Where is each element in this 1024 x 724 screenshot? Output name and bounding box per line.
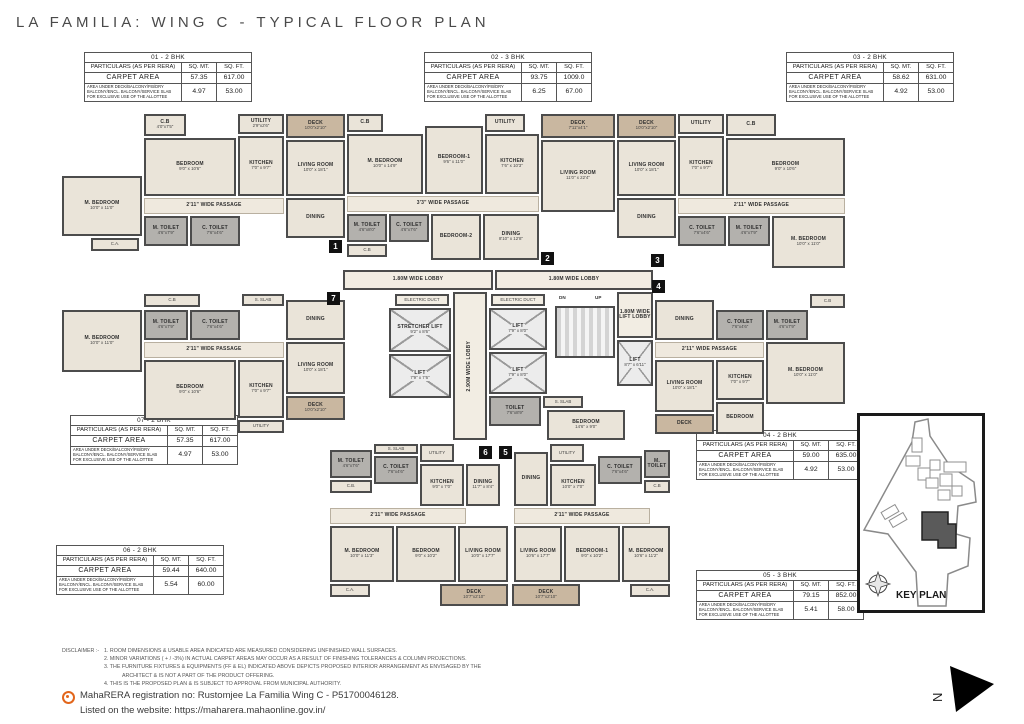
room-name: UTILITY [559,451,575,456]
room-dims: 10'0" x 18'1" [303,168,327,173]
room-name: 2'11" WIDE PASSAGE [554,513,609,519]
room-name: ELECTRIC DUCT [404,298,439,303]
room-name: DINING [675,317,694,323]
area-sqmt: 4.97 [182,83,217,101]
room-u5-utility: UTILITY [550,444,584,462]
unit-marker-2: 2 [541,252,554,265]
room-u1-bedroom: BEDROOM9'0" x 10'6" [144,138,236,196]
room-name: 2'11" WIDE PASSAGE [186,347,241,353]
room-name: C.B. [347,484,356,489]
room-name: S. SLAB [255,298,272,303]
room-u5-bedroom: BEDROOM14'6" x 9'0" [547,410,625,440]
area-under-label: AREA UNDER DECK/BALCONY/P.B/DRY BALCONY/… [787,83,884,101]
room-u4-bedroom: BEDROOM [716,402,764,434]
room-u1-dining: DINING [286,198,345,238]
room-name: S. SLAB [388,447,405,452]
passage-u7: 2'11" WIDE PASSAGE [144,342,284,358]
unit-marker-5: 5 [499,446,512,459]
lobby-strip-left: 1.80M WIDE LOBBY [343,270,493,290]
room-u7-common-toilet: C. TOILET7'6"x4'6" [190,310,240,340]
disclaimer-line: ARCHITECT & IS NOT A PART OF THE PRODUCT… [122,672,512,680]
room-dims: 4'6"x8'0" [359,228,376,233]
room-dims: 10'0" x 17'7" [471,554,495,559]
unit-marker-1: 1 [329,240,342,253]
col-header-sqmt: SQ. MT. [182,63,217,73]
room-u1-common-toilet: C. TOILET7'6"x4'6" [190,216,240,246]
maharera-icon [62,691,75,704]
col-header-sqft: SQ. FT. [919,63,954,73]
room-name: S. SLAB [555,400,572,405]
carpet-sqft: 1009.0 [557,72,592,83]
room-dims: 10'0"x2'10" [305,408,327,413]
room-u6-utility: UTILITY [420,444,454,462]
room-name: UTILITY [253,424,269,429]
room-u4-deck: DECK [655,414,714,434]
room-name: C.A. [111,242,120,247]
lift-4: LIFT8'7" x 6'11" [617,340,653,386]
room-name: C.B [360,120,369,126]
room-name: 3'3" WIDE PASSAGE [417,201,469,207]
room-dims: 7'0" x 9'7" [730,380,749,385]
room-dims: 4'6"x7'9" [158,325,175,330]
room-name: M. TOILET [646,459,668,470]
room-name: DINING [306,215,325,221]
room-u7-living: LIVING ROOM10'0" x 18'1" [286,342,345,394]
room-dims: 10'0"x2'10" [305,126,327,131]
room-name: DINING [637,215,656,221]
carpet-sqft: 617.00 [217,72,252,83]
room-u5-ca: C.A. [630,584,670,597]
room-name: 2'11" WIDE PASSAGE [734,203,789,209]
electric-duct-left: ELECTRIC DUCT [395,294,449,306]
room-u2-bedroom-1: BEDROOM-19'6" x 11'0" [425,126,483,194]
room-u3-kitchen: KITCHEN7'0" x 9'7" [678,136,724,196]
room-u3-master-toilet: M. TOILET4'6"x7'9" [728,216,770,246]
unit-marker-4: 4 [652,280,665,293]
room-u5-common-toilet: C. TOILET7'6"x4'6" [598,456,642,484]
room-u1-utility: UTILITY2'9"x2'6" [238,114,284,134]
room-u1-cb: C.B4'0"x7'5" [144,114,186,136]
room-u2-cb: C.B [347,114,383,132]
room-dims: 10'7"x2'10" [463,595,485,600]
room-dims: 9'6" x 11'0" [443,160,464,165]
room-u6-ca: C.A. [330,584,370,597]
room-dims: 10'0" x 14'9" [373,164,397,169]
lift-3: LIFT7'9" x 8'0" [489,352,547,394]
room-dims: 8'10" x 12'8" [499,237,523,242]
room-name: BEDROOM-2 [440,234,472,240]
room-u5-toilet: TOILET7'6"x8'9" [489,396,541,426]
room-u2-common-toilet: C. TOILET4'6"x7'6" [389,214,429,242]
room-u7-deck: DECK10'0"x2'10" [286,396,345,420]
room-dims: 4'0"x7'5" [157,125,174,130]
room-u5-dining: DINING [514,452,548,506]
room-u2-deck: DECK7'11"x4'1" [541,114,615,138]
room-u7-master-toilet: M. TOILET4'6"x7'9" [144,310,188,340]
carpet-area-label: CARPET AREA [425,72,522,83]
lobby-strip-right: 1.80M WIDE LOBBY [495,270,653,290]
area-sqmt: 4.92 [884,83,919,101]
room-u4-cb: C.B [810,294,845,308]
room-name: C.A. [346,588,355,593]
page-title: LA FAMILIA: WING C - TYPICAL FLOOR PLAN [16,14,490,31]
room-dims: 7'6"x4'6" [388,470,405,475]
room-name: C.B [824,299,831,304]
room-u1-kitchen: KITCHEN7'0" x 9'7" [238,136,284,196]
room-u1-master-toilet: M. TOILET4'6"x7'9" [144,216,188,246]
unit-table-title: 02 - 3 BHK [425,53,592,63]
room-name: 1.80M WIDE LOBBY [393,277,443,283]
room-dims: 10'0" x 11'0" [797,242,821,247]
room-dims: 10'0" x 18'1" [303,368,327,373]
room-dims: 7'9" x 8'0" [507,373,528,378]
room-u6-deck: DECK10'7"x2'10" [440,584,508,606]
disclaimer: DISCLAIMER :- 1. ROOM DIMENSIONS & USABL… [62,647,512,688]
col-header-sqmt: SQ. MT. [522,63,557,73]
room-u3-master-bedroom: M. BEDROOM10'0" x 11'0" [772,216,845,268]
maharera-registration: MahaRERA registration no: Rustomjee La F… [80,689,399,703]
room-dims: 7'6"x4'6" [694,231,711,236]
room-name: 1.80M WIDE LIFT LOBBY [619,310,651,321]
room-u6-bedroom: BEDROOM9'0" x 10'2" [396,526,456,582]
disclaimer-line: 3. THE FURNITURE FIXTURES & EQUIPMENTS (… [104,663,512,671]
room-u5-master-bedroom: M. BEDROOM10'6" x 11'2" [622,526,670,582]
keyplan-compass-icon [866,572,890,596]
room-u3-living: LIVING ROOM10'0" x 18'1" [617,140,676,196]
room-u2-master-bedroom: M. BEDROOM10'0" x 14'9" [347,134,423,194]
room-dims: 10'0" x 7'0" [562,485,584,490]
unit-table-01: 01 - 2 BHK PARTICULARS (AS PER RERA)SQ. … [84,52,252,102]
north-arrow: N [928,660,998,723]
room-name: DINING [306,317,325,323]
room-u4-kitchen: KITCHEN7'0" x 9'7" [716,360,764,400]
lift-lobby: 1.80M WIDE LIFT LOBBY [617,292,653,338]
room-name: DINING [522,476,541,482]
room-u3-cb: C.B [726,114,776,136]
unit-marker-3: 3 [651,254,664,267]
room-dims: 10'7"x2'10" [535,595,557,600]
room-u5-kitchen: KITCHEN10'0" x 7'0" [550,464,596,506]
room-u7-cb: C.B [144,294,200,307]
room-name: UTILITY [429,451,445,456]
room-dims: 11'7" x 8'4" [472,485,493,490]
core-service-slab: S. SLAB [543,396,583,408]
room-u3-utility: UTILITY [678,114,724,134]
col-header-particulars: PARTICULARS (AS PER RERA) [85,63,182,73]
lift-2: LIFT7'9" x 8'0" [489,308,547,350]
room-dims: 7'6"x4'6" [207,325,224,330]
room-dims: 11'0" x 22'4" [566,176,590,181]
area-under-label: AREA UNDER DECK/BALCONY/P.B/DRY BALCONY/… [425,83,522,101]
room-dims: 7'6"x4'6" [612,470,629,475]
room-u5-bedroom-1: BEDROOM-19'0" x 10'2" [564,526,620,582]
room-u2-living: LIVING ROOM11'0" x 22'4" [541,140,615,212]
room-u7-bedroom: BEDROOM9'0" x 10'6" [144,360,236,420]
room-u6-dining: DINING11'7" x 8'4" [466,464,500,506]
room-u2-dining: DINING8'10" x 12'8" [483,214,539,260]
room-dims: 4'6"x7'9" [779,325,796,330]
disclaimer-heading: DISCLAIMER :- [62,647,99,655]
passage-u3: 2'11" WIDE PASSAGE [678,198,845,214]
room-u2-cb-2: C.B [347,244,387,257]
stair-dn-label: DN [559,295,566,300]
room-dims: 10'0" x 11'0" [90,341,114,346]
room-u3-deck: DECK10'0"x2'10" [617,114,676,138]
room-dims: 9'0" x 10'6" [179,167,201,172]
room-u6-kitchen: KITCHEN9'0" x 7'0" [420,464,464,506]
room-u7-dining: DINING [286,300,345,340]
room-dims: 9'0" x 10'6" [775,167,797,172]
room-name: C.B [746,122,755,128]
room-dims: 4'6"x7'6" [401,228,418,233]
room-dims: 7'0" x 9'7" [251,166,270,171]
stair-up-label: UP [595,295,601,300]
passage-u5: 2'11" WIDE PASSAGE [514,508,650,524]
room-u7-service-slab: S. SLAB [242,294,284,306]
room-u6-master-toilet: M. TOILET4'6"x7'6" [330,450,372,478]
carpet-sqmt: 93.75 [522,72,557,83]
room-dims: 10'0" x 18'1" [672,386,696,391]
col-header-sqft: SQ. FT. [217,63,252,73]
room-name: 1.80M WIDE LOBBY [549,277,599,283]
room-name: C.A. [646,588,655,593]
room-u2-bedroom-2: BEDROOM-2 [431,214,481,260]
maharera-website[interactable]: Listed on the website: https://maharera.… [80,704,399,718]
room-dims: 7'6" x 10'3" [501,164,523,169]
room-u3-common-toilet: C. TOILET7'6"x4'6" [678,216,726,246]
room-u7-master-bedroom: M. BEDROOM10'0" x 11'0" [62,310,142,372]
room-u7-kitchen: KITCHEN7'0" x 9'7" [238,360,284,418]
room-dims: 9'0" x 10'2" [581,554,603,559]
maharera-block: MahaRERA registration no: Rustomjee La F… [62,689,399,718]
room-u4-dining: DINING [655,300,714,340]
col-header-sqmt: SQ. MT. [884,63,919,73]
room-name: 2.90M WIDE LOBBY [467,341,473,391]
room-dims: 10'0" x 11'0" [794,373,818,378]
room-name: DECK [677,421,692,427]
passage-u4: 2'11" WIDE PASSAGE [655,342,764,358]
area-sqft: 53.00 [919,83,954,101]
room-dims: 7'0" x 9'7" [691,166,710,171]
room-u4-master-bedroom: M. BEDROOM10'0" x 11'0" [766,342,845,404]
area-sqft: 67.00 [557,83,592,101]
room-name: UTILITY [495,120,515,126]
room-dims: 7'6"x4'6" [732,325,749,330]
room-u1-living: LIVING ROOM10'0" x 18'1" [286,140,345,196]
room-dims: 4'6"x7'9" [741,231,758,236]
room-dims: 10'6" x 11'2" [634,554,658,559]
carpet-sqmt: 58.62 [884,72,919,83]
room-u5-living: LIVING ROOM10'6" x 17'7" [514,526,562,582]
room-name: ELECTRIC DUCT [500,298,535,303]
col-header-sqft: SQ. FT. [557,63,592,73]
room-name: BEDROOM [726,415,754,421]
room-u3-bedroom: BEDROOM9'0" x 10'6" [726,138,845,196]
room-dims: 7'11"x4'1" [569,126,588,131]
room-dims: 7'9" x 8'0" [507,329,528,334]
room-dims: 9'0" x 7'0" [432,485,451,490]
lift-1: LIFT7'9" x 7'6" [389,354,451,398]
floor-plan: C.B4'0"x7'5" BEDROOM9'0" x 10'6" UTILITY… [55,100,855,645]
room-u6-living: LIVING ROOM10'0" x 17'7" [458,526,508,582]
room-dims: 9'0" x 10'6" [179,390,201,395]
unit-table-03: 03 - 2 BHK PARTICULARS (AS PER RERA)SQ. … [786,52,954,102]
room-u4-common-toilet: C. TOILET7'6"x4'6" [716,310,764,340]
disclaimer-line: 4. THIS IS THE PROPOSED PLAN & IS SUBJEC… [104,680,512,688]
north-label: N [930,693,945,702]
room-u6-service-slab: S. SLAB [374,444,418,454]
room-dims: 14'6" x 9'0" [575,425,597,430]
room-u2-kitchen: KITCHEN7'6" x 10'3" [485,134,539,194]
col-header-particulars: PARTICULARS (AS PER RERA) [787,63,884,73]
room-u5-deck: DECK10'7"x2'10" [512,584,580,606]
disclaimer-line: 1. ROOM DIMENSIONS & USABLE AREA INDICAT… [104,647,512,655]
key-plan-map: KEY PLAN [860,416,982,610]
carpet-area-label: CARPET AREA [787,72,884,83]
disclaimer-line: 2. MINOR VARIATIONS ( + / -3%) IN ACTUAL… [104,655,512,663]
central-lobby: 2.90M WIDE LOBBY [453,292,487,440]
room-dims: 7'6"x8'9" [507,411,524,416]
room-u5-master-toilet: M. TOILET [644,450,670,478]
room-dims: 7'9" x 7'6" [409,376,430,381]
room-u4-living: LIVING ROOM10'0" x 18'1" [655,360,714,412]
room-dims: 2'9"x2'6" [253,124,270,129]
room-u5-cb: C.B [644,480,670,493]
room-name: C.B [363,248,370,253]
room-dims: 10'0" x 11'3" [350,554,374,559]
room-dims: 10'0" x 18'1" [634,168,658,173]
room-u1-master-bedroom: M. BEDROOM10'0" x 11'0" [62,176,142,236]
room-name: 2'11" WIDE PASSAGE [370,513,425,519]
room-dims: 9'0" x 10'2" [415,554,437,559]
area-under-label: AREA UNDER DECK/BALCONY/P.B/DRY BALCONY/… [85,83,182,101]
electric-duct-right: ELECTRIC DUCT [491,294,545,306]
room-dims: 7'0" x 9'7" [251,389,270,394]
room-dims: 8'7" x 6'11" [623,363,646,368]
carpet-sqft: 631.00 [919,72,954,83]
room-dims: 10'0" x 11'0" [90,206,114,211]
carpet-area-label: CARPET AREA [85,72,182,83]
room-dims: 4'6"x7'6" [343,464,360,469]
staircase [555,306,615,358]
area-sqmt: 6.25 [522,83,557,101]
room-name: C.B [653,484,660,489]
room-u6-cb: C.B. [330,480,372,493]
room-u7-utility: UTILITY [238,420,284,433]
unit-table-title: 03 - 2 BHK [787,53,954,63]
room-u2-utility: UTILITY [485,114,525,132]
room-u4-master-toilet: M. TOILET4'6"x7'9" [766,310,808,340]
north-arrow-icon: N [928,660,998,718]
room-dims: 10'0"x2'10" [636,126,658,131]
unit-table-02: 02 - 3 BHK PARTICULARS (AS PER RERA)SQ. … [424,52,592,102]
passage-u6: 2'11" WIDE PASSAGE [330,508,466,524]
key-plan: KEY PLAN [857,413,985,613]
unit-table-title: 01 - 2 BHK [85,53,252,63]
room-u6-common-toilet: C. TOILET7'6"x4'6" [374,456,418,484]
room-dims: 10'6" x 17'7" [526,554,550,559]
room-dims: 9'2" x 8'6" [409,330,430,335]
room-dims: 4'6"x7'9" [158,231,175,236]
room-name: C.B [168,298,175,303]
key-plan-label: KEY PLAN [896,590,946,601]
passage-u2: 3'3" WIDE PASSAGE [347,196,539,212]
stretcher-lift: STRETCHER LIFT9'2" x 8'6" [389,308,451,352]
col-header-particulars: PARTICULARS (AS PER RERA) [425,63,522,73]
unit-marker-6: 6 [479,446,492,459]
room-name: UTILITY [691,121,711,127]
room-u1-deck: DECK10'0"x2'10" [286,114,345,138]
room-u1-ca: C.A. [91,238,139,251]
room-name: 2'11" WIDE PASSAGE [682,347,737,353]
area-sqft: 53.00 [217,83,252,101]
carpet-sqmt: 57.35 [182,72,217,83]
room-u3-dining: DINING [617,198,676,238]
unit-marker-7: 7 [327,292,340,305]
room-dims: 7'6"x4'6" [207,231,224,236]
room-u6-master-bedroom: M. BEDROOM10'0" x 11'3" [330,526,394,582]
passage-u1: 2'11" WIDE PASSAGE [144,198,284,214]
room-name: 2'11" WIDE PASSAGE [186,203,241,209]
room-u2-master-toilet: M. TOILET4'6"x8'0" [347,214,387,242]
